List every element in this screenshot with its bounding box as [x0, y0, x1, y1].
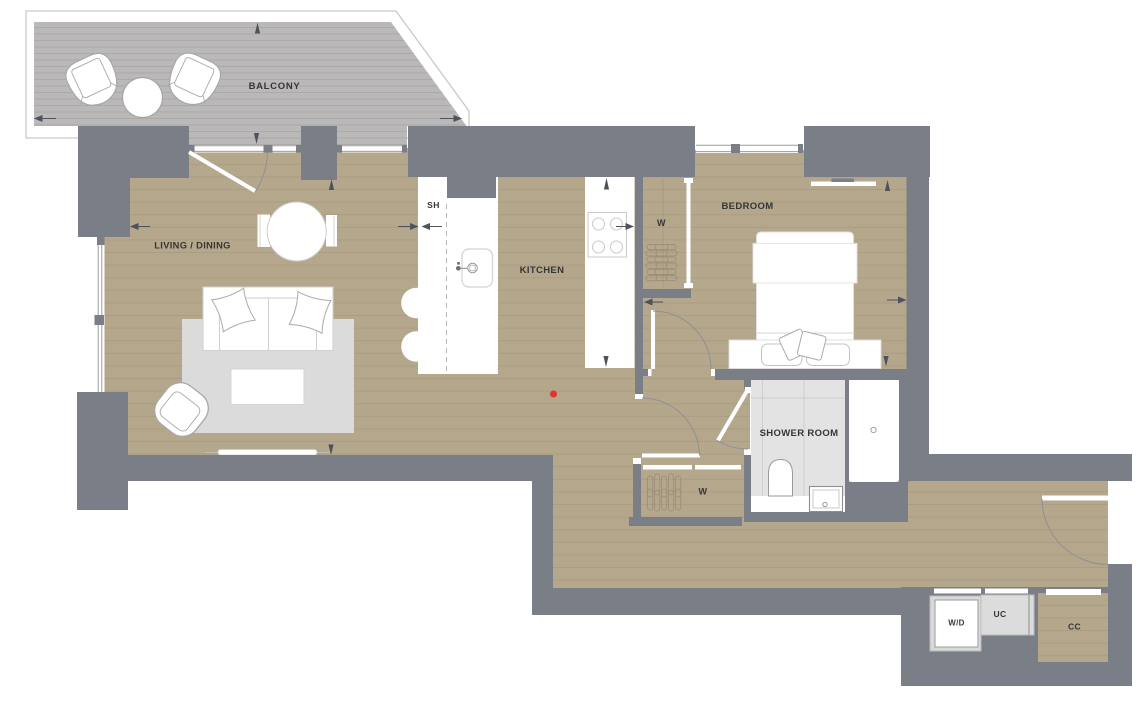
- svg-text:UC: UC: [994, 609, 1007, 619]
- svg-text:KITCHEN: KITCHEN: [520, 265, 565, 276]
- svg-text:CC: CC: [1068, 622, 1081, 632]
- svg-text:LIVING / DINING: LIVING / DINING: [154, 241, 231, 251]
- svg-text:W/D: W/D: [948, 619, 964, 628]
- svg-text:W: W: [699, 487, 708, 497]
- svg-text:BEDROOM: BEDROOM: [721, 201, 773, 212]
- svg-text:W: W: [657, 218, 666, 228]
- svg-text:BALCONY: BALCONY: [249, 81, 301, 92]
- svg-text:SHOWER ROOM: SHOWER ROOM: [760, 428, 839, 439]
- svg-text:SH: SH: [427, 200, 440, 210]
